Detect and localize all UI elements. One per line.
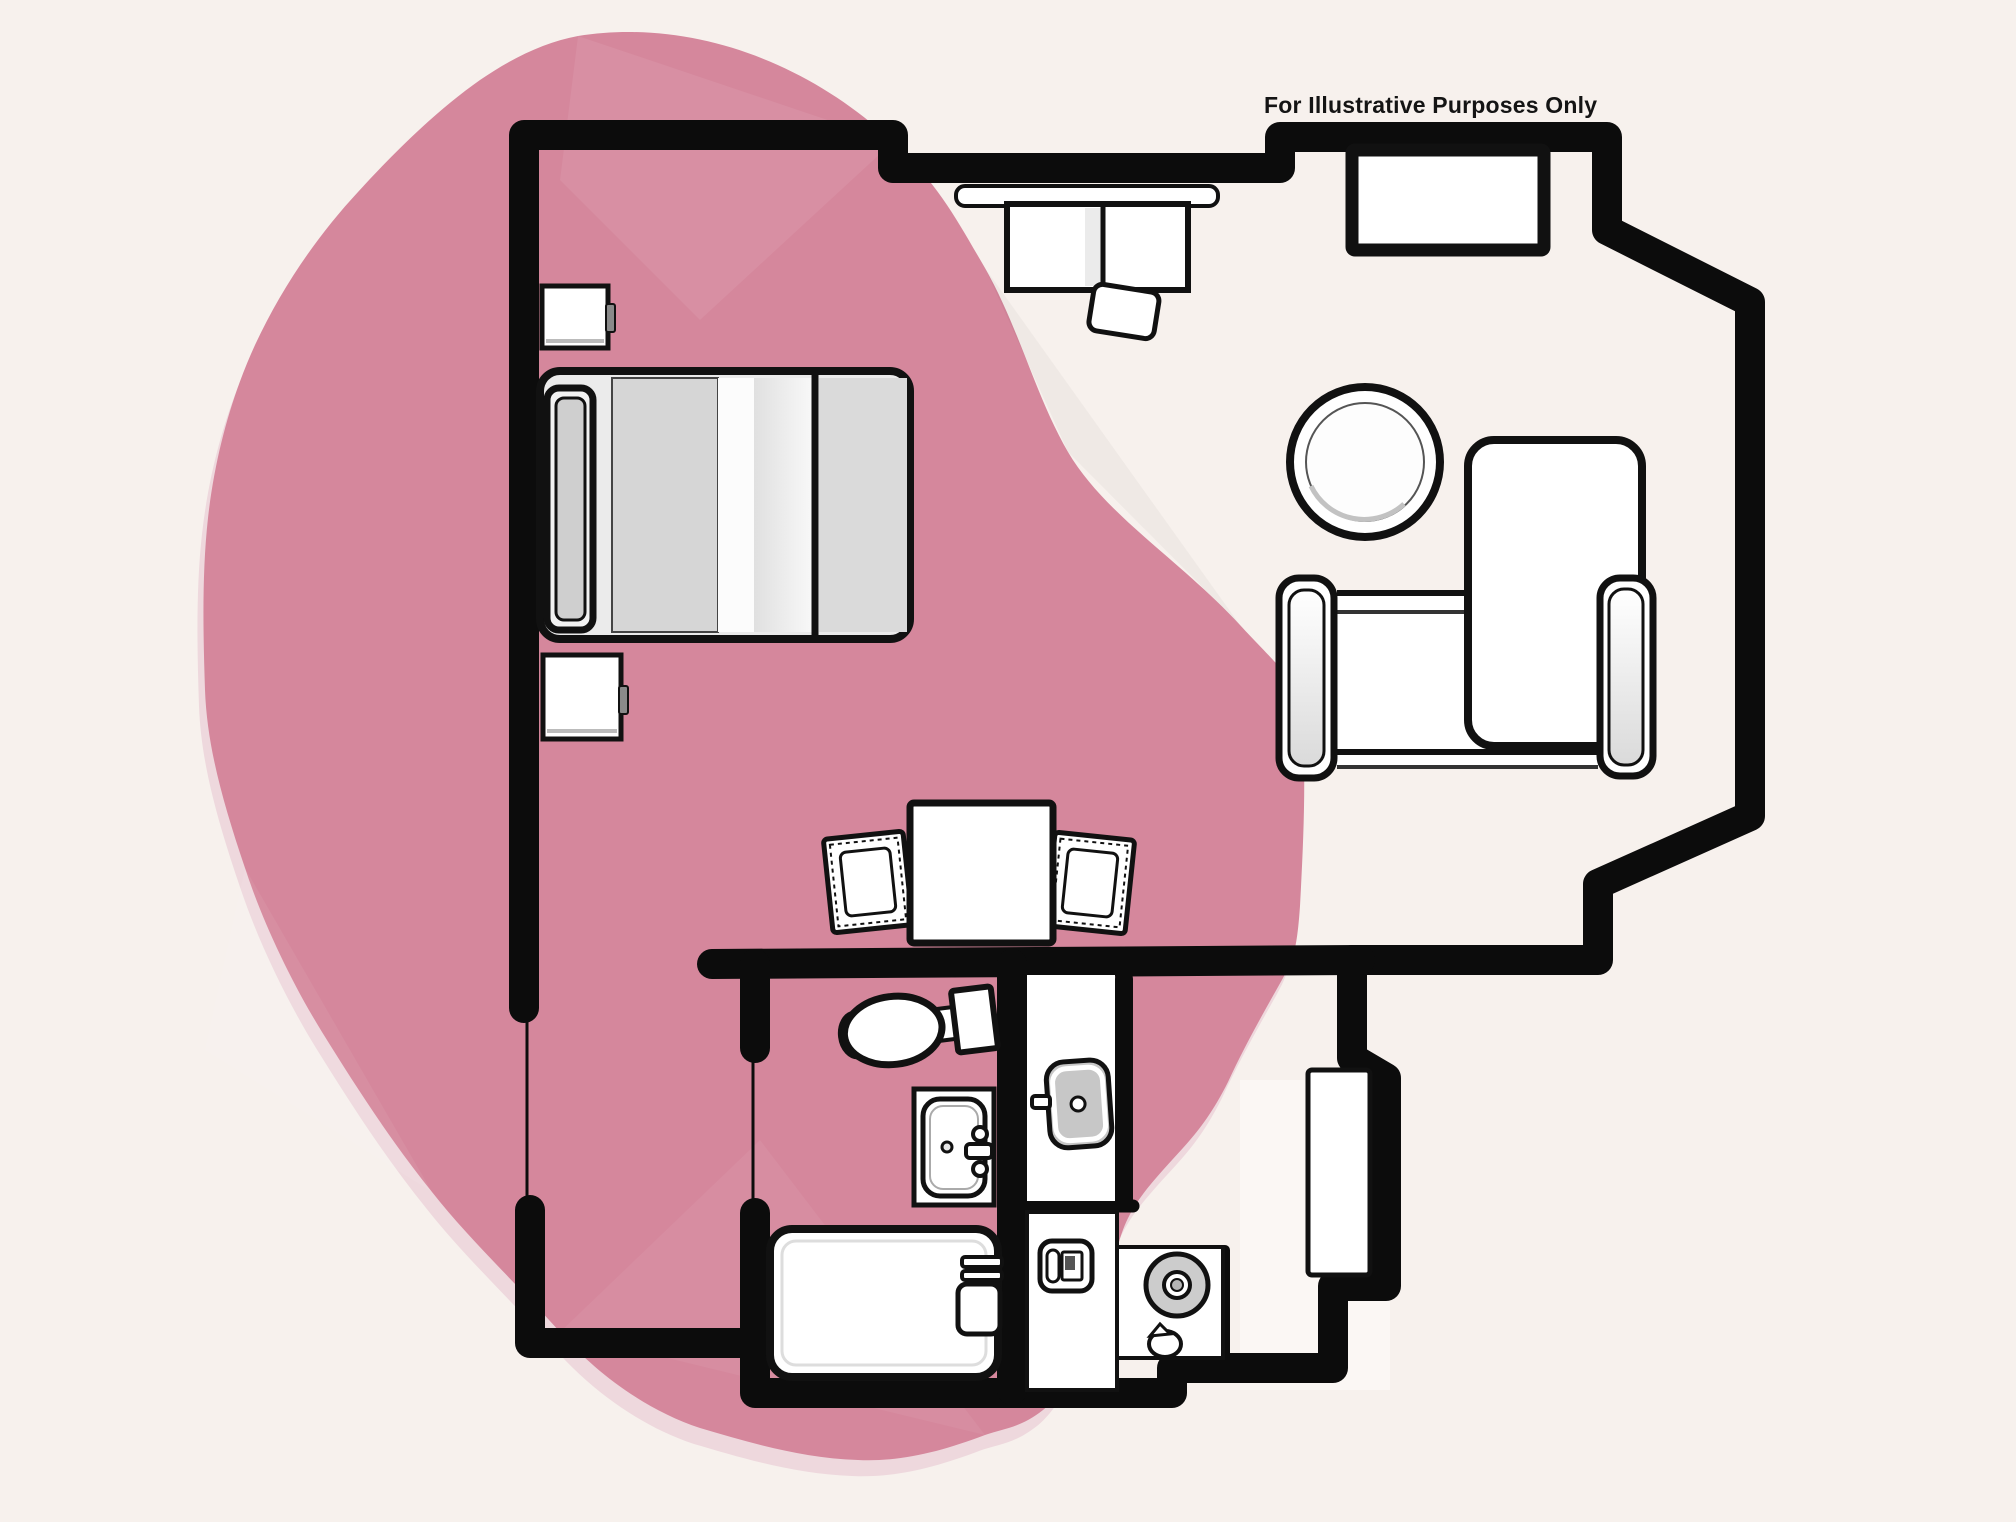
illustrative-note: For Illustrative Purposes Only: [1264, 92, 1597, 119]
tub-drain: [942, 1142, 952, 1152]
tv-console: [1352, 150, 1544, 250]
bed-sheet-fold: [718, 378, 754, 632]
dining-chair-left: [823, 831, 912, 933]
wall-desk: [956, 186, 1218, 290]
shower-control: [958, 1284, 1000, 1334]
headboard-pillow-inner: [556, 398, 585, 620]
wall-interior-bathroom-top: [712, 960, 1360, 964]
bed-sheet-panel: [612, 378, 718, 632]
desk-chair: [1088, 283, 1161, 340]
toilet-tank: [951, 986, 998, 1052]
bed: [540, 371, 910, 639]
nightstand-knob: [619, 686, 628, 714]
bathtub: [914, 1089, 994, 1205]
bed-foot-panel: [819, 378, 907, 632]
desk-shade: [1085, 208, 1101, 286]
shower-bar: [962, 1257, 1002, 1267]
shower: [770, 1229, 1002, 1377]
nightstand-knob: [606, 304, 615, 332]
dining-chair-right: [1045, 832, 1134, 934]
round-side-table: [1290, 387, 1440, 537]
floor-plan: For Illustrative Purposes Only: [0, 0, 2016, 1522]
dining-table: [910, 803, 1053, 943]
tub-spout: [966, 1144, 992, 1158]
tub-handle: [973, 1127, 987, 1141]
sink-drain: [1071, 1097, 1086, 1112]
armrest-left: [1279, 578, 1334, 778]
floor-plan-canvas: [0, 0, 2016, 1522]
nightstand-upper: [542, 286, 615, 348]
vanity-sink: [1027, 975, 1115, 1201]
nightstand-lower: [543, 655, 628, 739]
bed-blanket-gradient: [754, 378, 812, 632]
armrest-right: [1600, 578, 1653, 776]
entry-door: [1308, 1070, 1370, 1275]
kitchen-sink-unit: [1117, 1247, 1223, 1358]
tub-handle: [973, 1162, 987, 1176]
sink-faucet: [1032, 1096, 1050, 1108]
kitchen-counter: [1027, 1212, 1117, 1390]
coffee-maker: [1040, 1241, 1092, 1291]
shower-bar: [962, 1271, 1002, 1280]
